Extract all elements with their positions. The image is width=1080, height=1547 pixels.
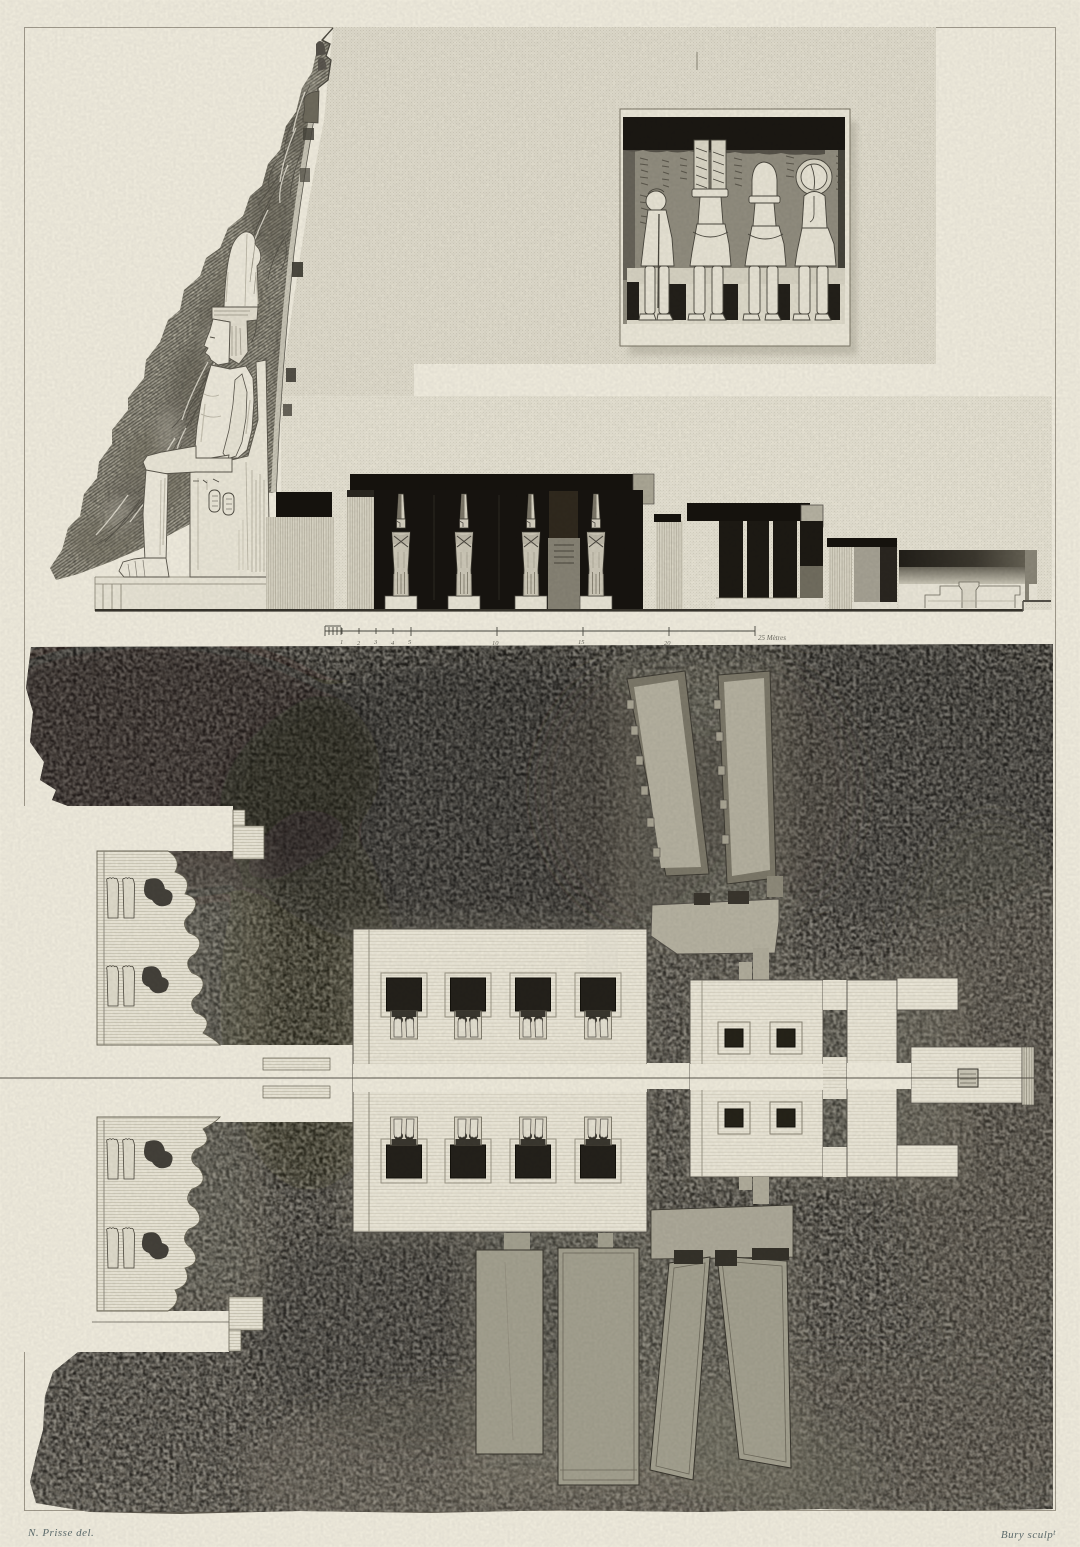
svg-text:Bury sculpt: Bury sculpt	[1001, 1528, 1056, 1541]
svg-text:N. Prisse del.: N. Prisse del.	[27, 1527, 94, 1539]
